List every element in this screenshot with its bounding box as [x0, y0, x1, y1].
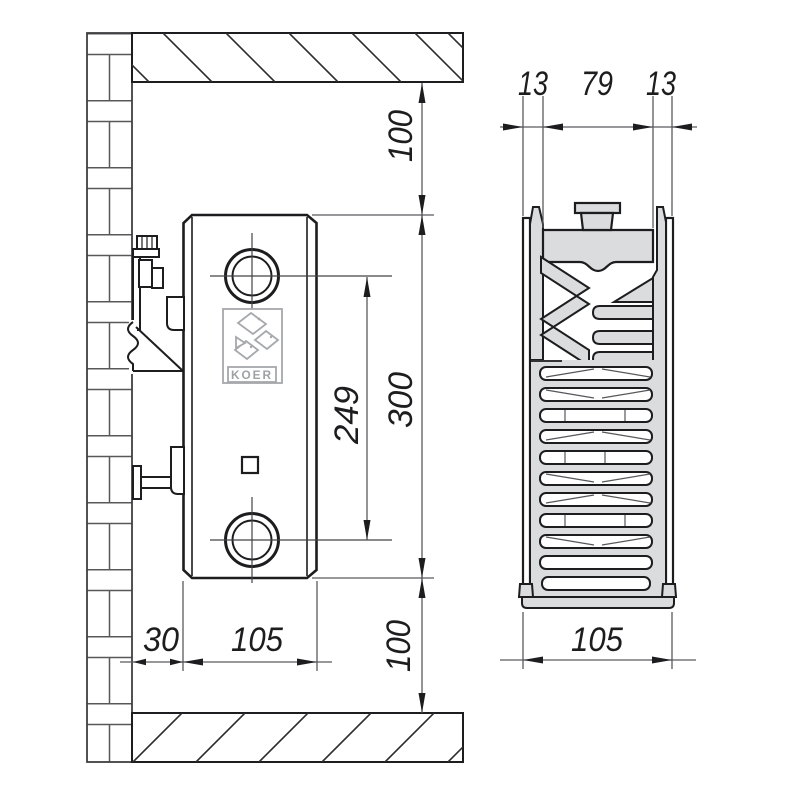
convector-zigzag-fin	[541, 257, 589, 366]
drain-plug-square	[242, 457, 258, 473]
dim-label-port-spacing: 249	[328, 386, 366, 445]
convector-slot-grid	[531, 360, 665, 598]
brick-wall	[87, 33, 132, 762]
radiator-installation-drawing: KOER	[0, 0, 800, 800]
dim-label-floor-gap: 100	[380, 620, 418, 672]
section-left-panel	[523, 218, 530, 604]
cross-section-view	[519, 203, 676, 608]
section-top-header	[543, 230, 653, 271]
dim-label-back-panel: 13	[646, 65, 676, 103]
dim-label-depth-section: 105	[571, 621, 623, 659]
dim-label-wall-gap: 30	[143, 621, 179, 659]
convector-side-fins	[593, 278, 653, 365]
dim-label-front-panel: 13	[518, 65, 548, 103]
floor	[132, 713, 497, 762]
koer-logo: KOER	[223, 309, 282, 383]
dim-label-depth-side: 105	[231, 621, 283, 659]
drawing-svg: KOER	[0, 0, 800, 800]
logo-text: KOER	[231, 368, 273, 382]
wall-bracket-bottom	[133, 447, 184, 499]
dim-label-core-width: 79	[581, 65, 613, 103]
vent-nipple	[575, 203, 620, 230]
section-left-strip	[530, 207, 543, 360]
dim-label-ceiling-gap: 100	[382, 110, 420, 162]
dim-label-height: 300	[382, 372, 420, 428]
section-right-panel	[666, 218, 673, 604]
wall-bracket-top	[128, 236, 184, 374]
